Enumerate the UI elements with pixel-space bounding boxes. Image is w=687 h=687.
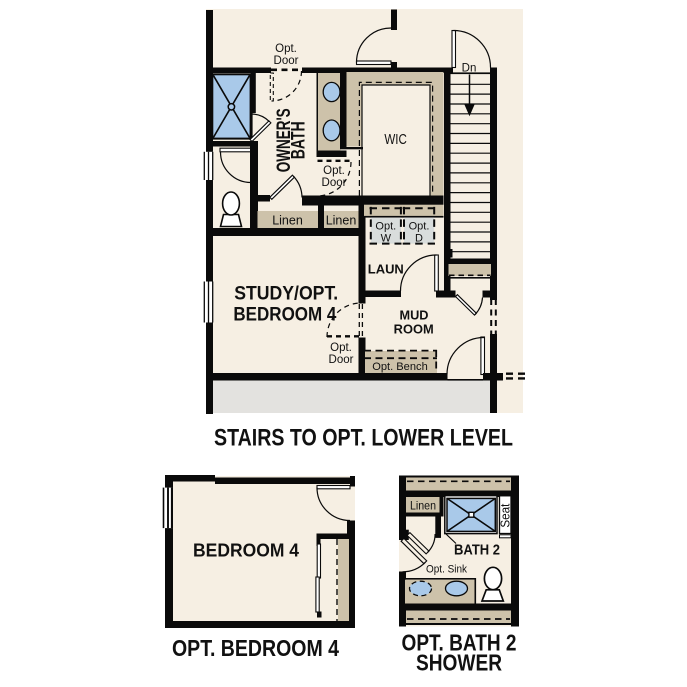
svg-text:Door: Door [329, 354, 354, 366]
svg-text:BEDROOM 4: BEDROOM 4 [193, 540, 300, 561]
svg-text:Opt. Sink: Opt. Sink [426, 564, 467, 576]
svg-text:ROOM: ROOM [394, 323, 434, 337]
svg-text:Linen: Linen [410, 499, 436, 513]
svg-text:WIC: WIC [384, 132, 407, 148]
svg-text:BEDROOM 4: BEDROOM 4 [233, 304, 336, 325]
svg-text:MUD: MUD [400, 308, 429, 322]
svg-text:Opt.: Opt. [323, 165, 345, 177]
svg-text:Opt.: Opt. [330, 342, 352, 354]
svg-text:Linen: Linen [272, 214, 303, 228]
svg-text:Opt. Bench: Opt. Bench [372, 361, 428, 373]
svg-text:STAIRS TO OPT. LOWER LEVEL: STAIRS TO OPT. LOWER LEVEL [214, 425, 513, 452]
svg-text:OPT. BEDROOM 4: OPT. BEDROOM 4 [172, 635, 339, 661]
svg-text:LAUN: LAUN [368, 263, 404, 277]
svg-text:D: D [415, 232, 423, 244]
svg-text:Seat: Seat [499, 503, 513, 527]
svg-text:STUDY/OPT.: STUDY/OPT. [234, 284, 338, 305]
svg-text:Door: Door [274, 55, 299, 67]
svg-text:Door: Door [322, 177, 347, 189]
svg-text:BATH: BATH [289, 121, 310, 159]
svg-text:SHOWER: SHOWER [416, 650, 502, 676]
svg-text:Opt.: Opt. [275, 43, 297, 55]
svg-text:Opt.: Opt. [375, 221, 396, 233]
svg-text:Opt.: Opt. [409, 221, 430, 233]
svg-text:Dn: Dn [462, 63, 477, 75]
svg-text:W: W [381, 232, 392, 244]
svg-text:Linen: Linen [326, 214, 357, 228]
svg-text:BATH 2: BATH 2 [454, 542, 500, 558]
